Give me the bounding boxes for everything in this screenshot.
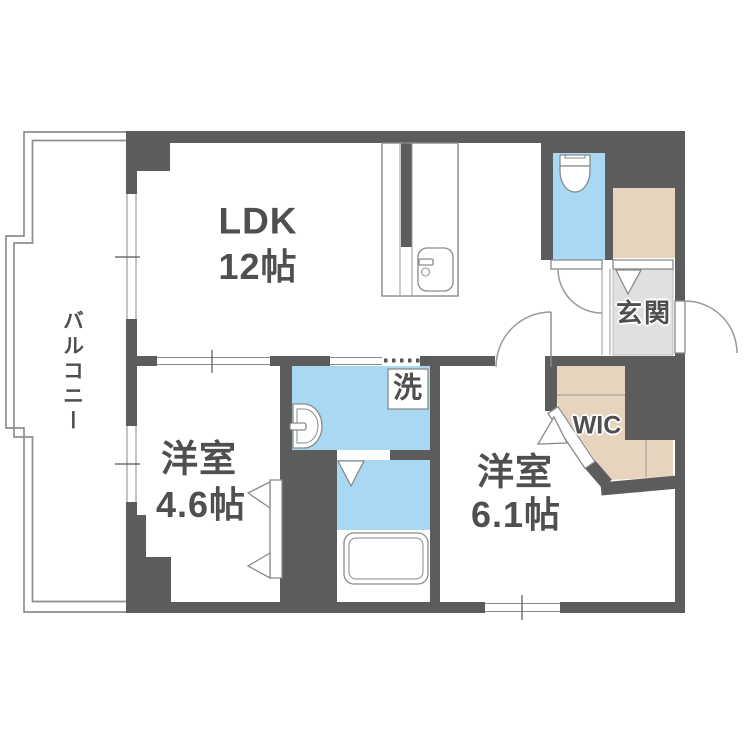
hall-frame-lines [602, 269, 610, 355]
kitchen-faucet-icon [419, 259, 433, 265]
balcony-label: バルコニー [62, 310, 83, 435]
window-south [485, 595, 560, 620]
bedroom-b-label: 洋室 [477, 454, 553, 491]
closet-doors [248, 480, 282, 578]
bedroom-door [496, 312, 551, 367]
sliding-door-washroom [330, 356, 427, 366]
entrance-door [675, 301, 737, 353]
toilet-icon [560, 155, 590, 192]
sliding-door-ldk-bedroom [157, 350, 270, 373]
window-balcony-ldk [115, 194, 140, 319]
closet-door-triangle [248, 553, 270, 578]
closet-door-triangle [248, 482, 270, 508]
kitchen-sink-icon [418, 248, 453, 291]
entrance-label: 玄関 [616, 300, 672, 326]
toilet-door-arc [558, 269, 602, 313]
bedroom-a-label: 洋室 [161, 441, 237, 478]
floor-plan-canvas [0, 0, 750, 750]
bath-door-slot [337, 450, 390, 460]
toilet-threshold [551, 260, 602, 269]
wic-label: WIC [573, 414, 622, 439]
window-balcony-bedroom [115, 426, 140, 502]
laundry-label: 洗 [393, 375, 423, 404]
kitchen-counter [382, 143, 458, 296]
washbasin-icon [290, 404, 322, 448]
entrance-threshold [613, 260, 673, 269]
floor-plan: LDK 12帖 洋室 4.6帖 洋室 6.1帖 バルコニー 玄関 WIC 洗 [0, 0, 750, 750]
bedroom-b-size-label: 6.1帖 [471, 497, 561, 533]
shoe-cabinet [613, 188, 675, 258]
ldk-room-label: LDK [218, 203, 297, 240]
bathtub-icon [344, 533, 428, 584]
bedroom-a-size-label: 4.6帖 [156, 487, 246, 523]
ldk-size-label: 12帖 [218, 249, 297, 285]
